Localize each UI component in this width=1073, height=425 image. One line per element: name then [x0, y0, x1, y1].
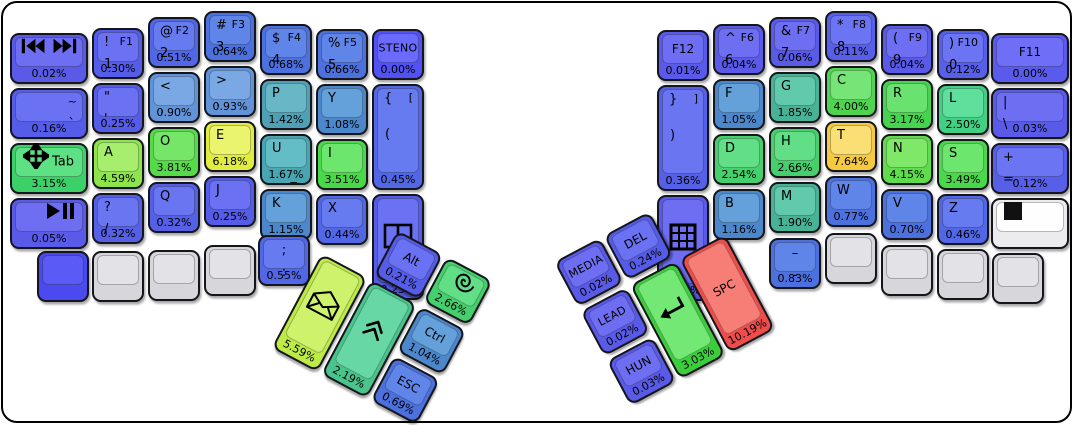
key-p: P1.42%: [260, 79, 312, 130]
key-usage-percent: 0.16%: [12, 122, 86, 136]
key-label: O: [160, 135, 170, 148]
key-usage-percent: 0.51%: [150, 51, 198, 65]
key-blank-gray-r2: [881, 245, 933, 296]
key-usage-percent: 6.18%: [206, 155, 254, 169]
key-label: (: [893, 32, 898, 45]
key-usage-percent: 0.11%: [827, 45, 875, 59]
key-label: B: [725, 197, 734, 210]
keytop: [42, 255, 84, 285]
key-usage-percent: 0.32%: [150, 216, 198, 230]
keytop: [15, 202, 83, 232]
key-label: *: [837, 19, 844, 32]
key-6-f6: ^F660.04%: [713, 24, 765, 75]
key-label: F7: [797, 25, 810, 36]
key-usage-percent: 3.51%: [318, 173, 366, 187]
keytop: V: [886, 193, 928, 223]
key-usage-percent: 3.15%: [12, 177, 86, 191]
key-label: F6: [741, 32, 754, 43]
key-label: {: [384, 92, 392, 105]
key-comma: <,0.90%: [148, 72, 200, 123]
key-x: X0.44%: [316, 194, 368, 245]
keytop: @F22: [153, 21, 195, 51]
key-f12: F120.01%: [657, 30, 709, 81]
key-usage-percent: 2.54%: [715, 168, 763, 182]
key-usage-percent: 0.32%: [94, 227, 142, 241]
key-label: G: [781, 80, 791, 93]
keytop: [153, 254, 195, 284]
key-label: W: [837, 184, 850, 197]
key-label: %: [328, 37, 340, 50]
key-y: Y1.08%: [316, 84, 368, 135]
key-usage-percent: 3.17%: [883, 113, 931, 127]
keytop: G: [774, 76, 816, 106]
key-label: [: [409, 92, 413, 103]
key-b: B1.16%: [713, 189, 765, 240]
key-q: Q0.32%: [148, 182, 200, 233]
key-usage-percent: 1.16%: [715, 223, 763, 237]
key-label: A: [104, 146, 113, 159]
keytop: A: [97, 142, 139, 172]
keytop: T: [830, 125, 872, 155]
key-label: Alt: [401, 250, 421, 268]
key-s: S3.49%: [937, 139, 989, 190]
keytop: ~`: [15, 92, 83, 122]
key-usage-percent: 0.93%: [206, 100, 254, 114]
keytop: &F77: [774, 21, 816, 51]
keytop: +=: [996, 147, 1064, 177]
key-blank-gray-r1: [825, 233, 877, 284]
key-label: F1: [120, 36, 133, 47]
keytop: [942, 253, 984, 283]
key-label: X: [328, 202, 337, 215]
key-usage-percent: 4.00%: [827, 100, 875, 114]
key-label: ": [104, 91, 110, 104]
key-label: @: [160, 25, 173, 38]
key-usage-percent: 0.03%: [993, 122, 1067, 136]
key-e: E6.18%: [204, 121, 256, 172]
key-usage-percent: 0.55%: [260, 269, 308, 283]
keytop: [997, 257, 1039, 287]
key-3-f3: #F330.64%: [204, 11, 256, 62]
key-4-f4: $F440.68%: [260, 24, 312, 75]
key-label: +: [1003, 151, 1014, 164]
key-label: ]: [694, 93, 698, 104]
key-usage-percent: 0.70%: [883, 223, 931, 237]
key-usage-percent: 4.15%: [883, 168, 931, 182]
key-label: Ctrl: [422, 325, 446, 346]
key-usage-percent: 4.59%: [94, 172, 142, 186]
play-pause-icon: [45, 203, 75, 219]
key-label: T: [837, 129, 845, 142]
key-label: F8: [853, 19, 866, 30]
keytop: *F88: [830, 15, 872, 45]
key-label: R: [893, 87, 902, 100]
key-usage-percent: 0.01%: [659, 64, 707, 78]
key-j: J0.25%: [204, 176, 256, 227]
key-label: |: [1003, 96, 1007, 109]
key-usage-percent: 0.00%: [993, 67, 1067, 81]
keytop: C: [830, 70, 872, 100]
key-usage-percent: 7.64%: [827, 155, 875, 169]
key-label: V: [893, 197, 902, 210]
key-label: Z: [949, 202, 958, 215]
key-blank-gray-r3: [937, 249, 989, 300]
key-label: Tab: [52, 156, 74, 169]
key-usage-percent: 0.04%: [715, 58, 763, 72]
keytop: ?/: [97, 197, 139, 227]
key-usage-percent: 0.64%: [206, 45, 254, 59]
key-steno: STENO0.00%: [372, 29, 424, 80]
keytop: "': [97, 87, 139, 117]
key-label: F4: [288, 32, 301, 43]
keytop: L: [942, 88, 984, 118]
key-usage-percent: 0.04%: [883, 58, 931, 72]
key-label: F11: [1019, 46, 1041, 58]
keytop: H_: [774, 131, 816, 161]
key-label: ~: [68, 96, 77, 107]
key-label: F9: [909, 32, 922, 43]
key-label: ;: [264, 244, 304, 257]
key-label: L: [949, 92, 956, 105]
key-label: ?: [104, 201, 111, 214]
key-v: V0.70%: [881, 189, 933, 240]
key-blank-gray-l3: [204, 245, 256, 296]
keytop: STENO: [377, 33, 419, 63]
key-blank-blue: [37, 251, 89, 302]
keytop: F11: [996, 37, 1064, 67]
key-label: C: [837, 74, 846, 87]
keytop: J: [209, 180, 251, 210]
key-label: HUN: [624, 354, 653, 377]
key-usage-percent: 0.06%: [771, 51, 819, 65]
key-period: >.0.93%: [204, 66, 256, 117]
key-usage-percent: 3.49%: [939, 173, 987, 187]
keytop: Z: [942, 198, 984, 228]
key-usage-percent: 0.02%: [12, 67, 86, 81]
key-label: F2: [176, 25, 189, 36]
key-usage-percent: 0.83%: [771, 272, 819, 286]
keytop: [830, 237, 872, 267]
key-play-pause: 0.05%: [10, 198, 88, 249]
keytop: >.: [209, 70, 251, 100]
keytop: }]): [662, 89, 704, 174]
key-label: }: [669, 93, 677, 106]
key-usage-percent: 0.36%: [659, 174, 707, 188]
key-usage-percent: 0.30%: [94, 62, 142, 76]
key-label: SPC: [711, 277, 737, 299]
key-label: ^: [725, 32, 736, 45]
key-r: R3.17%: [881, 79, 933, 130]
keytop: %F55: [321, 33, 363, 63]
keytop: [209, 249, 251, 279]
keytop: [97, 255, 139, 285]
keytop: [15, 37, 83, 67]
key-w: W0.77%: [825, 176, 877, 227]
keytop: R: [886, 83, 928, 113]
keytop: W: [830, 180, 872, 210]
key-l: L2.50%: [937, 84, 989, 135]
keytop: Y: [321, 88, 363, 118]
key-label: LEAD: [596, 304, 628, 328]
key-label: –: [775, 247, 815, 260]
keytop: {[(: [377, 88, 419, 173]
key-label: S: [949, 147, 957, 160]
keytop: F12: [662, 34, 704, 64]
key-label: D: [725, 142, 735, 155]
key-blank-gray-l1: [92, 251, 144, 302]
key-label: $: [272, 32, 280, 45]
key-u: U_1.67%: [260, 134, 312, 185]
key-label: (: [385, 128, 390, 141]
keytop: ;:: [263, 239, 305, 269]
key-label: F12: [672, 43, 694, 55]
keytop: [996, 202, 1064, 232]
key-label: F: [725, 87, 732, 100]
keytop: F: [718, 83, 760, 113]
key-media-prev-next: 0.02%: [10, 33, 88, 84]
key-usage-percent: 0.68%: [262, 58, 310, 72]
keytop: ^F66: [718, 28, 760, 58]
key-blank-gray-r4: [992, 253, 1044, 304]
key-label: Q: [160, 190, 170, 203]
key-usage-percent: 0.44%: [318, 228, 366, 242]
keytop: )F100: [942, 33, 984, 63]
key-usage-percent: 0.00%: [374, 63, 422, 77]
key-usage-percent: 0.45%: [374, 173, 422, 187]
key-label: I: [328, 147, 332, 160]
key-label: N: [893, 142, 903, 155]
key-usage-percent: 0.46%: [939, 228, 987, 242]
key-f: F1.05%: [713, 79, 765, 130]
key-label: H: [781, 135, 791, 148]
key-tab-move: Tab3.15%: [10, 143, 88, 194]
key-usage-percent: 1.85%: [771, 106, 819, 120]
key-label: M: [781, 190, 792, 203]
key-label: K: [272, 197, 281, 210]
key-label: DEL: [622, 229, 648, 251]
keytop: E: [209, 125, 251, 155]
key-label: ): [670, 129, 675, 142]
keytop: O: [153, 131, 195, 161]
key-dash: –-0.83%: [769, 238, 821, 289]
key-quote: "'0.25%: [92, 83, 144, 134]
prev-next-track-icon: [20, 38, 78, 54]
key-usage-percent: 0.77%: [827, 210, 875, 224]
keytop: D: [718, 138, 760, 168]
key-usage-percent: 1.67%: [262, 168, 310, 182]
key-label: F3: [232, 19, 245, 30]
key-label: <: [160, 80, 171, 93]
key-usage-percent: 0.25%: [94, 117, 142, 131]
key-tilde-backtick: ~`0.16%: [10, 88, 88, 139]
key-usage-percent: 3.81%: [150, 161, 198, 175]
key-label: E: [216, 129, 224, 142]
key-0-f10: )F1000.12%: [937, 29, 989, 80]
key-plus-equals: +=0.12%: [991, 143, 1069, 194]
keytop: !F11: [97, 32, 139, 62]
keytop: [886, 249, 928, 279]
key-question-slash: ?/0.32%: [92, 193, 144, 244]
keytop: |\: [996, 92, 1064, 122]
key-7-f7: &F770.06%: [769, 17, 821, 68]
key-d: D2.54%: [713, 134, 765, 185]
key-5-f5: %F550.66%: [316, 29, 368, 80]
key-semicolon-colon: ;:0.55%: [258, 235, 310, 286]
keytop: I: [321, 143, 363, 173]
key-label: !: [104, 36, 109, 49]
keytop: K: [265, 193, 307, 223]
key-m: M1.90%: [769, 182, 821, 233]
key-usage-percent: 0.12%: [993, 177, 1067, 191]
key-o: O3.81%: [148, 127, 200, 178]
key-k: K1.15%: [260, 189, 312, 240]
key-usage-percent: 0.25%: [206, 210, 254, 224]
keytop: $F44: [265, 28, 307, 58]
key-usage-percent: 0.12%: [939, 63, 987, 77]
keytop: B: [718, 193, 760, 223]
key-8-f8: *F880.11%: [825, 11, 877, 62]
key-usage-percent: 0.90%: [150, 106, 198, 120]
keytop: #F33: [209, 15, 251, 45]
key-label: F5: [344, 37, 357, 48]
key-g: G1.85%: [769, 72, 821, 123]
key-f11: F110.00%: [991, 33, 1069, 84]
keytop: X: [321, 198, 363, 228]
keytop: S: [942, 143, 984, 173]
key-label: U: [272, 142, 282, 155]
keytop: <,: [153, 76, 195, 106]
key-label: STENO: [378, 43, 417, 54]
keytop: Q: [153, 186, 195, 216]
key-1-f1: !F110.30%: [92, 28, 144, 79]
key-label: J: [216, 184, 220, 197]
key-label: ESC: [395, 374, 421, 396]
key-usage-percent: 0.05%: [12, 232, 86, 246]
key-t: T7.64%: [825, 121, 877, 172]
black-square-icon: [1004, 203, 1022, 219]
key-brackets-close: }])0.36%: [657, 85, 709, 191]
key-z: Z0.46%: [937, 194, 989, 245]
key-brackets-open: {[(0.45%: [372, 84, 424, 190]
move-icon: [23, 148, 49, 164]
key-2-f2: @F220.51%: [148, 17, 200, 68]
key-9-f9: (F990.04%: [881, 24, 933, 75]
key-label: &: [781, 25, 791, 38]
key-i: I3.51%: [316, 139, 368, 190]
key-usage-percent: 1.08%: [318, 118, 366, 132]
keytop: Tab: [15, 147, 83, 177]
keytop: (F99: [886, 28, 928, 58]
key-usage-percent: 2.50%: [939, 118, 987, 132]
key-label: P: [272, 87, 280, 100]
keytop: –-: [774, 242, 816, 272]
key-usage-percent: 1.05%: [715, 113, 763, 127]
keytop: P: [265, 83, 307, 113]
key-usage-percent: 1.90%: [771, 216, 819, 230]
key-color-swatch: [991, 198, 1069, 249]
key-label: #: [216, 19, 227, 32]
keytop: N: [886, 138, 928, 168]
key-usage-percent: 0.66%: [318, 63, 366, 77]
key-usage-percent: 2.66%: [771, 161, 819, 175]
key-pipe-backslash: |\0.03%: [991, 88, 1069, 139]
key-label: >: [216, 74, 227, 87]
key-c: C4.00%: [825, 66, 877, 117]
key-label: F10: [958, 37, 978, 48]
keytop: M: [774, 186, 816, 216]
key-usage-percent: 1.42%: [262, 113, 310, 127]
key-blank-gray-l2: [148, 250, 200, 301]
key-label: ): [949, 37, 954, 50]
keytop: U_: [265, 138, 307, 168]
key-a: A4.59%: [92, 138, 144, 189]
key-n: N4.15%: [881, 134, 933, 185]
key-label: Y: [328, 92, 336, 105]
key-h: H_2.66%: [769, 127, 821, 178]
